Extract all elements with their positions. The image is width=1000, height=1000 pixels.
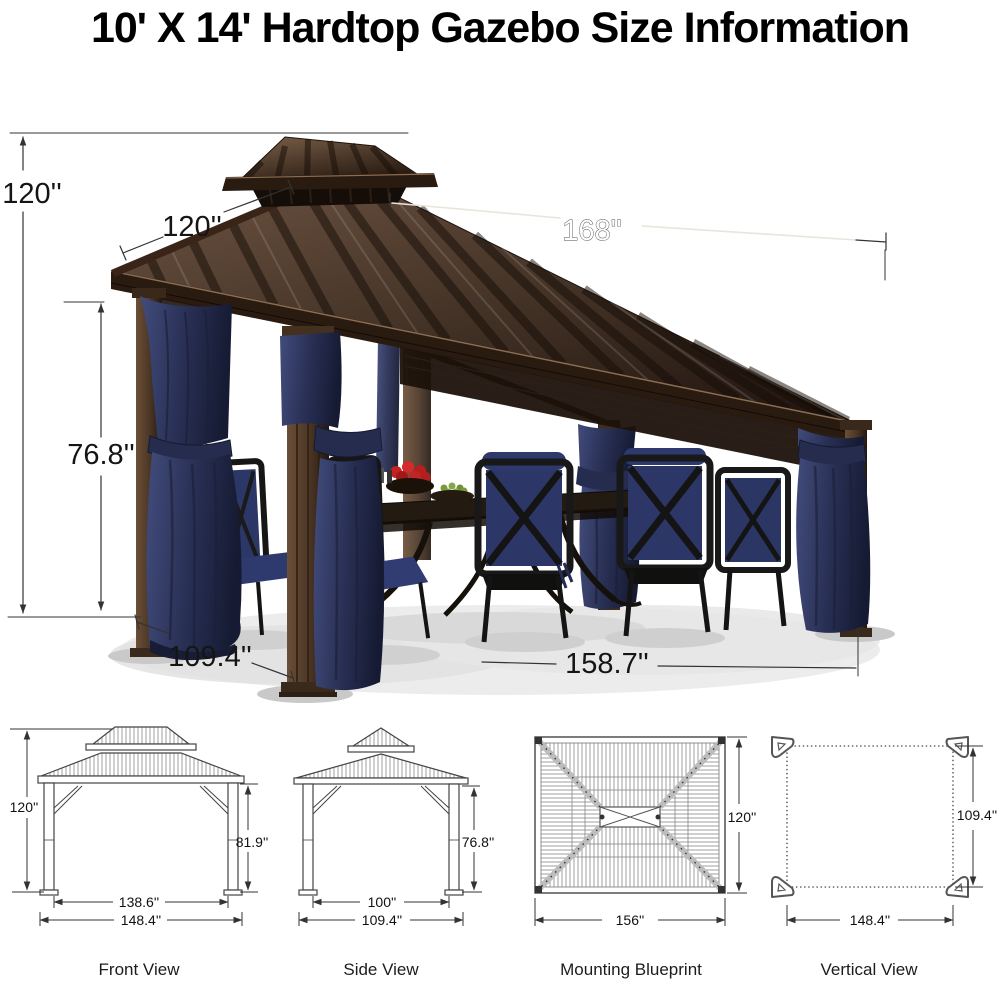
blueprint-width: 156'' — [616, 912, 645, 928]
page: 10' X 14' Hardtop Gazebo Size Informatio… — [0, 0, 1000, 1000]
shaker — [387, 470, 392, 483]
front-view-outer-width: 148.4'' — [121, 912, 161, 928]
side-view-inner-width: 100'' — [368, 894, 397, 910]
caption-vertical-view: Vertical View — [820, 960, 917, 980]
foot-plate — [772, 737, 794, 757]
side-view-outer-width: 109.4'' — [362, 912, 402, 928]
caption-mounting-blueprint: Mounting Blueprint — [560, 960, 702, 980]
mounting-blueprint-drawing: 120'' 156'' — [535, 737, 756, 928]
vertical-view-width: 148.4'' — [850, 912, 890, 928]
grape-plate — [430, 483, 474, 503]
front-view-inner-width: 138.6'' — [119, 894, 159, 910]
front-view-height: 120'' — [10, 799, 39, 815]
gazebo-photo — [108, 137, 895, 703]
dim-base-width-label: 158.7'' — [565, 648, 649, 680]
dim-roof-front-label: 168'' — [562, 215, 621, 247]
chair — [718, 470, 788, 630]
caption-front-view: Front View — [99, 960, 180, 980]
main-illustration: 120'' 120'' 168'' 76.8'' 109.4'' — [0, 0, 1000, 1000]
caption-side-view: Side View — [343, 960, 418, 980]
vertical-view-height: 109.4'' — [957, 807, 997, 823]
blueprint-height: 120'' — [728, 809, 757, 825]
vertical-view-drawing: 109.4'' 148.4'' — [772, 737, 997, 928]
side-view-drawing: 76.8'' 100'' 109.4'' — [294, 728, 494, 928]
foot-plate — [772, 877, 794, 897]
dim-height-label: 120'' — [2, 178, 61, 210]
front-view-post-height: 81.9'' — [236, 834, 269, 850]
dim-roof-side-label: 120'' — [162, 211, 221, 243]
dim-post-height-label: 76.8'' — [67, 439, 135, 471]
side-view-post-height: 76.8'' — [462, 834, 495, 850]
front-view-drawing: 120'' 81.9'' 138.6'' 148.4'' — [10, 727, 269, 928]
foot-plate — [947, 737, 969, 757]
dim-base-depth-label: 109.4'' — [168, 641, 252, 673]
curtain-left — [140, 296, 242, 660]
curtain-right — [796, 428, 870, 633]
